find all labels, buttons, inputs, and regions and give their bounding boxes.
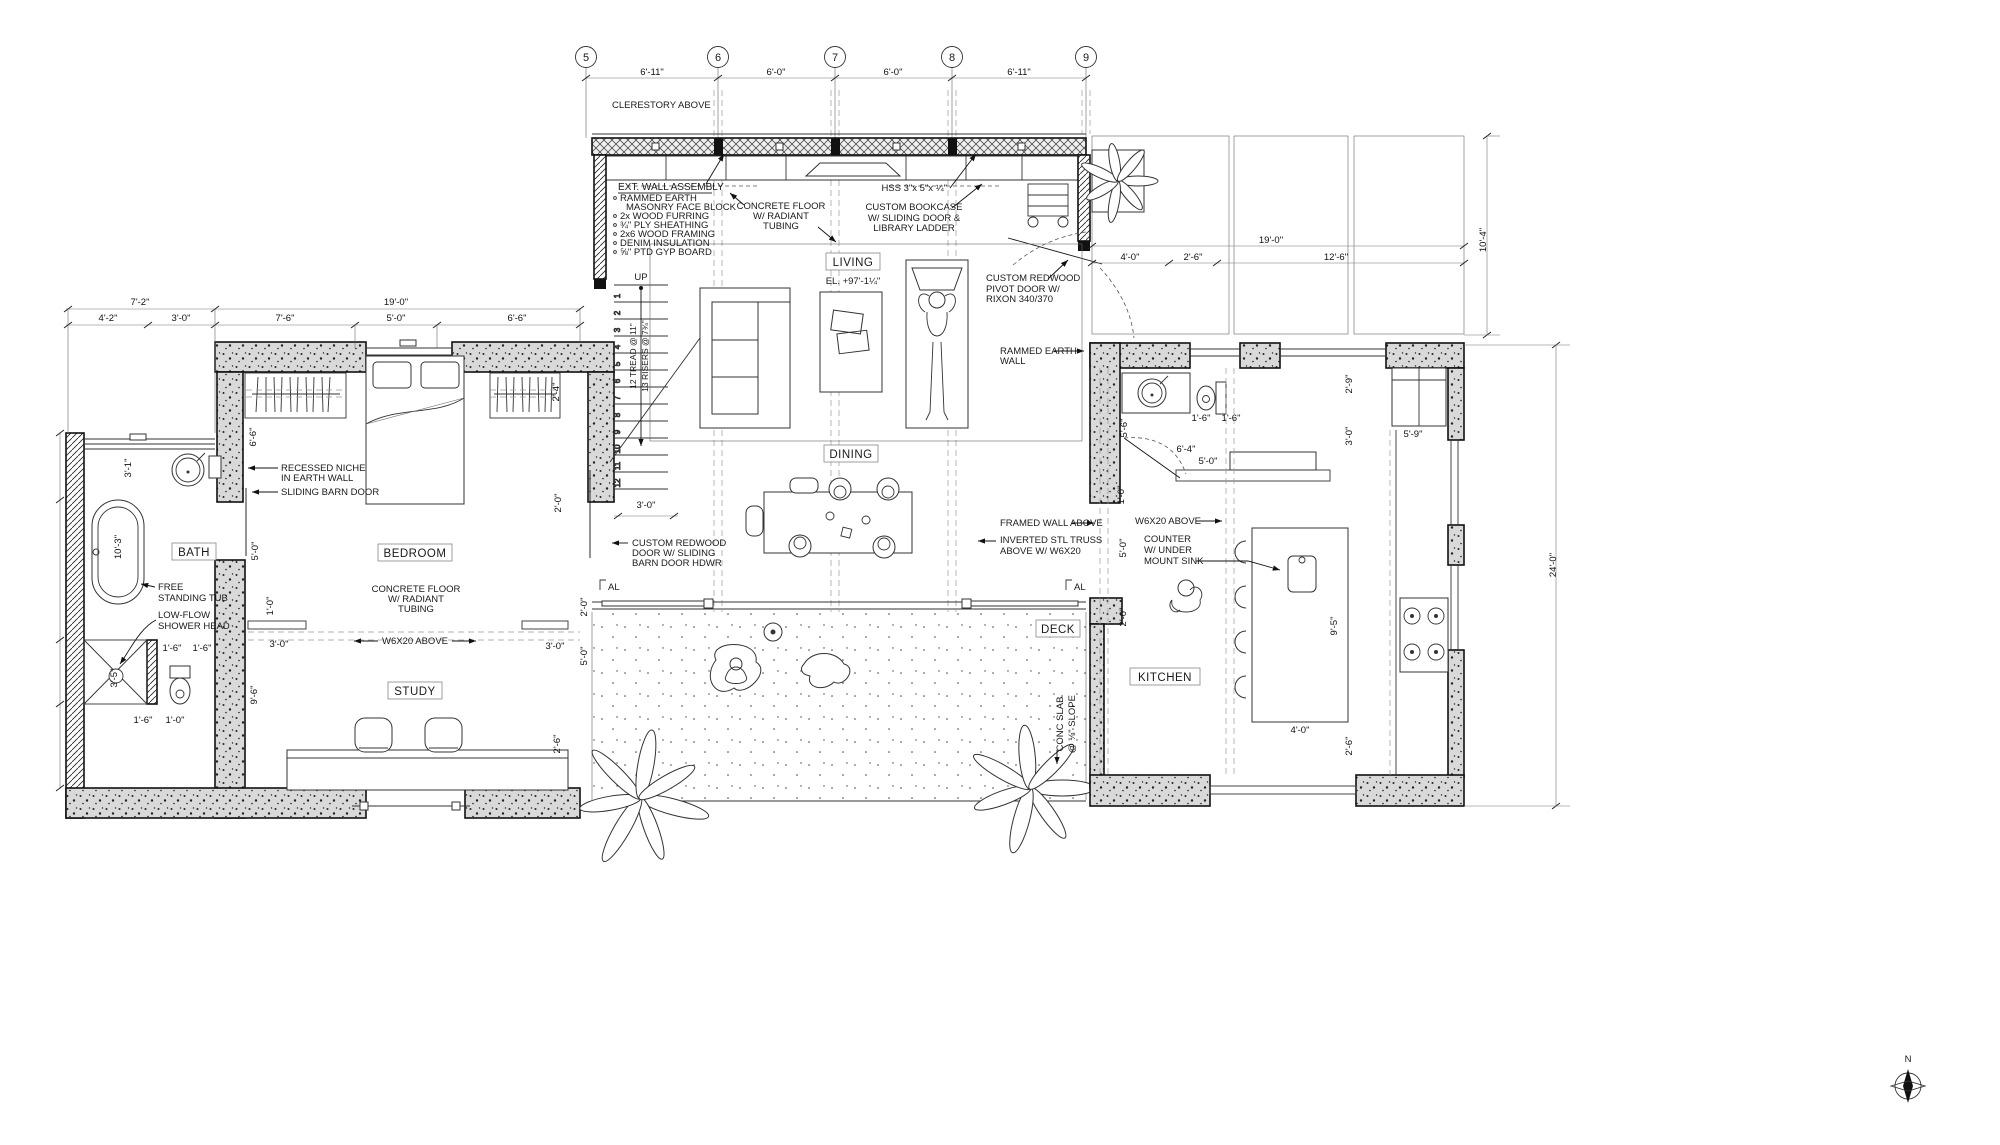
framed-wall-note: FRAMED WALL ABOVE	[1000, 518, 1103, 529]
svg-text:TUBING: TUBING	[763, 221, 799, 232]
room-label-kitchen: KITCHEN	[1138, 672, 1192, 684]
dimension-label: 1'-6"	[1222, 413, 1241, 424]
library-ladder	[1028, 184, 1068, 227]
shower-note: LOW-FLOW	[158, 610, 210, 621]
person-seated	[789, 535, 811, 557]
person-kitchen	[1170, 580, 1202, 612]
dimension-label: 6'-0"	[767, 67, 786, 78]
bath-window	[84, 434, 215, 449]
room-label-living: LIVING	[833, 257, 874, 269]
dimension-label: 6'-11"	[1007, 67, 1031, 78]
dimension-label: 19'-0"	[1259, 235, 1283, 246]
svg-text:@ ⅛" SLOPE: @ ⅛" SLOPE	[1067, 695, 1078, 753]
dimension-label: 5'-0"	[387, 313, 406, 324]
svg-text:TUBING: TUBING	[398, 604, 434, 615]
svg-text:W/ UNDER: W/ UNDER	[1144, 545, 1192, 556]
floor-plan-sheet: { "drawing": { "grid": { "bubbles": ["5"…	[0, 0, 2000, 1145]
wall-assembly-item: ⅝" PTD GYP BOARD	[620, 247, 712, 258]
dimension-label: 6'-6"	[508, 313, 527, 324]
dining-table-group	[746, 478, 912, 558]
stair-tread-number: 7	[613, 395, 622, 400]
pantry-sliding-door	[1176, 470, 1330, 481]
dimension-label: 1'-6"	[163, 643, 182, 654]
stair-tread-number: 11	[613, 461, 622, 470]
dimension-label: 3'-0"	[172, 313, 191, 324]
room-label-study: STUDY	[394, 686, 435, 698]
dimension-label: 1'-6"	[1192, 413, 1211, 424]
floor-plan-drawing: 5 6 7 8 9	[0, 0, 2000, 1145]
dimension-label: 9'-5"	[1329, 617, 1340, 636]
daybed-person	[906, 260, 968, 428]
room-label-deck: DECK	[1041, 624, 1075, 636]
grid-bubble-label: 9	[1083, 52, 1089, 64]
dimension-label: 2'-0"	[553, 494, 564, 513]
stair-tread-number: 5	[613, 361, 622, 366]
dimension-label: 4'-2"	[99, 313, 118, 324]
svg-text:WALL: WALL	[1000, 356, 1026, 367]
dimension-label: 6'-0"	[884, 67, 903, 78]
stair-up-label: UP	[634, 272, 647, 283]
dimension-label: 2'-4"	[551, 383, 562, 402]
bath-west-wall	[66, 433, 84, 818]
powder-toilet	[1197, 382, 1226, 414]
dimension-label: 1'-6"	[193, 643, 212, 654]
dimension-label: 6'-6"	[248, 428, 259, 447]
dimension-label: 1'-0"	[166, 715, 185, 726]
stair-text: UP 12 TREAD @ 11" 13 RISERS @ 7¾"	[628, 272, 650, 392]
svg-text:LIBRARY LADDER: LIBRARY LADDER	[873, 223, 955, 234]
stair-tread-number: 4	[613, 344, 622, 349]
dimension-label: 4'-0"	[1121, 252, 1140, 263]
grid-bubble-label: 8	[949, 52, 955, 64]
person-seated	[829, 478, 851, 500]
closet-left	[245, 373, 346, 418]
dimension-label: 24'-0"	[1548, 553, 1559, 577]
dimension-label: 2'-9"	[1344, 375, 1355, 394]
grid-bubble-label: 6	[715, 52, 721, 64]
dimension-label: 2'-0"	[579, 598, 590, 617]
dining-chair	[790, 478, 818, 493]
stair-tread-number: 12	[613, 478, 622, 487]
dimension-label: 3'-5"	[109, 669, 120, 688]
dimension-label: 4'-0"	[1291, 725, 1310, 736]
stool	[1235, 586, 1246, 608]
dimension-label: 10'-4"	[1478, 228, 1489, 252]
svg-text:STANDING TUB: STANDING TUB	[158, 593, 228, 604]
dimension-label: 2'-6"	[552, 735, 563, 754]
svg-text:MOUNT SINK: MOUNT SINK	[1144, 556, 1204, 567]
stair-tread-number: 1	[613, 293, 622, 298]
dimension-label: 1'-0"	[265, 597, 276, 616]
svg-text:RIXON 340/370: RIXON 340/370	[986, 294, 1053, 305]
tub-note: FREE	[158, 582, 183, 593]
dimension-label: 5'-6"	[1119, 419, 1130, 438]
room-label-bedroom: BEDROOM	[384, 548, 447, 560]
dimension-label: 10'-3"	[113, 535, 124, 559]
patio-plant	[1080, 143, 1158, 224]
coffee-table	[820, 292, 882, 392]
person-seated	[873, 536, 895, 558]
fridge	[1392, 368, 1446, 426]
deck	[579, 599, 1095, 865]
stair-tread-number: 8	[613, 412, 622, 417]
svg-text:SHOWER HEAD: SHOWER HEAD	[158, 621, 230, 632]
dimension-label: 7'-2"	[131, 297, 150, 308]
stair-tread-number: 6	[613, 378, 622, 383]
patio	[1080, 133, 1500, 338]
dimension-label: 5'-0"	[1118, 539, 1129, 558]
sliding-panel-left	[248, 621, 306, 629]
dimension-label: 5'-0"	[250, 542, 261, 561]
dimension-label: 3'-1"	[123, 459, 134, 478]
recessed-niche	[209, 456, 221, 478]
dimension-label: 3'-0"	[546, 641, 565, 652]
dimension-label: 3'-0"	[637, 500, 656, 511]
wall-assembly-title: EXT. WALL ASSEMBLY	[618, 182, 724, 193]
dimension-label: 6'-11"	[640, 67, 664, 78]
clerestory-note: CLERESTORY ABOVE	[612, 100, 711, 111]
grid-bubbles: 5 6 7 8 9	[576, 47, 1097, 68]
dimension-label: 5'-0"	[1199, 456, 1218, 467]
stair-treads-label: 12 TREAD @ 11"	[628, 323, 638, 389]
desk-chair	[355, 718, 392, 752]
closet-right	[490, 373, 560, 418]
living-elevation: EL. +97'-1¼"	[826, 276, 881, 287]
dimension-label: 2'-6"	[1184, 252, 1203, 263]
stair-tread-number: 2	[613, 310, 622, 315]
kitchen-wing	[1090, 343, 1464, 806]
counter-note: COUNTER	[1144, 534, 1191, 545]
dimension-label: 19'-0"	[384, 297, 408, 308]
kitchen-north-windows	[1190, 349, 1386, 356]
w6x20-note: W6X20 ABOVE	[382, 636, 448, 647]
person-seated	[877, 478, 899, 500]
dimension-label: 3'-0"	[1344, 427, 1355, 446]
dimension-label: 6'-4"	[1177, 444, 1196, 455]
door-tag: AL	[1074, 582, 1086, 593]
truss-note: INVERTED STL TRUSS	[1000, 535, 1102, 546]
dimension-label: 12'-6"	[1324, 252, 1348, 263]
room-label-dining: DINING	[829, 449, 872, 461]
svg-text:IN EARTH WALL: IN EARTH WALL	[281, 473, 353, 484]
pantry-shelf	[1230, 452, 1316, 470]
barn-door-note: SLIDING BARN DOOR	[281, 487, 379, 498]
conc-slab-note: CONC SLAB	[1055, 697, 1066, 752]
dimension-label: 1'-6"	[134, 715, 153, 726]
bath-toilet	[170, 666, 190, 704]
w6x20-note: W6X20 ABOVE	[1135, 516, 1201, 527]
stool	[1235, 631, 1246, 653]
stair-tread-number: 9	[613, 429, 622, 434]
dimension-label: 5'-9"	[1404, 429, 1423, 440]
grid-bubble-label: 7	[832, 52, 838, 64]
dimension-label: 2'-0"	[1118, 608, 1129, 627]
dimension-label: 1'-0"	[1116, 486, 1127, 505]
hss-note: HSS 3"x 5"x ¼"	[881, 183, 947, 194]
dimension-label: 2'-6"	[1344, 737, 1355, 756]
door-tag: AL	[608, 582, 620, 593]
dimension-label: 3'-0"	[270, 639, 289, 650]
desk-chair	[425, 718, 462, 752]
bookcase-note: CUSTOM BOOKCASE	[866, 202, 963, 213]
grid-bubble-label: 5	[583, 52, 589, 64]
dimension-label: 7'-6"	[276, 313, 295, 324]
stair-tread-number: 3	[613, 327, 622, 332]
dining-chair	[746, 506, 763, 536]
stair-risers-label: 13 RISERS @ 7¾"	[640, 320, 650, 392]
north-compass: N	[1891, 1054, 1925, 1103]
bed	[366, 356, 464, 504]
stool	[1235, 676, 1246, 698]
north-arrow	[1903, 1069, 1913, 1103]
west-rammed-wall	[594, 155, 606, 279]
door-tags: AL AL	[600, 580, 1086, 593]
sofa	[700, 288, 790, 428]
counter-range	[1396, 430, 1448, 775]
stool	[1235, 541, 1246, 563]
svg-text:ABOVE W/ W6X20: ABOVE W/ W6X20	[1000, 546, 1081, 557]
dimension-label: 9'-6"	[249, 686, 260, 705]
dimension-label: 5'-0"	[579, 647, 590, 666]
sliding-panel-right	[522, 621, 568, 629]
desk	[287, 750, 568, 790]
island-sink	[1288, 556, 1316, 592]
svg-text:BARN DOOR HDWR: BARN DOOR HDWR	[632, 558, 722, 569]
room-label-bath: BATH	[178, 547, 210, 559]
north-label: N	[1905, 1054, 1912, 1065]
pivot-door-note: CUSTOM REDWOOD	[986, 273, 1080, 284]
media-shelf	[806, 163, 900, 176]
